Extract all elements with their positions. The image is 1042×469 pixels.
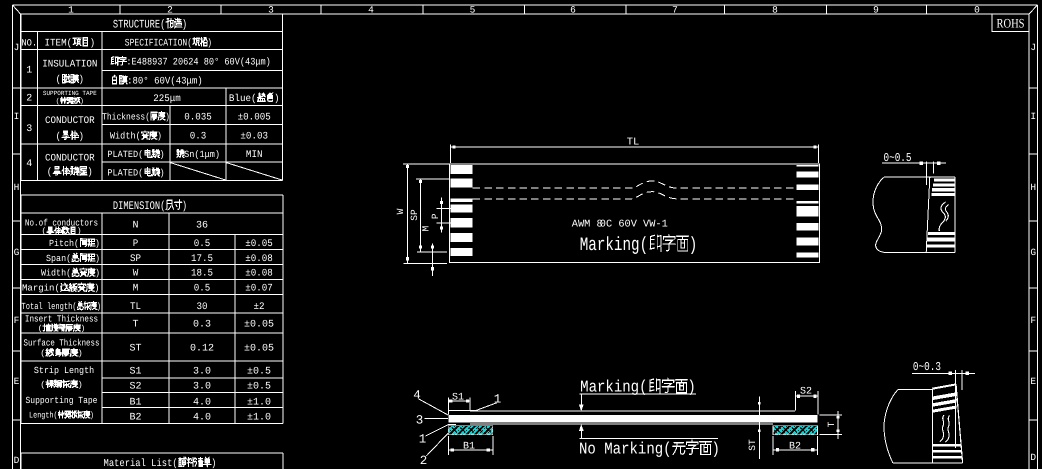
svg-text:0.035: 0.035 (184, 112, 212, 123)
svg-text:): ) (90, 37, 96, 49)
svg-text:J: J (1030, 42, 1036, 53)
svg-text:ITEM(: ITEM( (45, 37, 73, 49)
svg-text:±0.5: ±0.5 (247, 367, 271, 378)
svg-text:G: G (1030, 247, 1036, 258)
svg-text:4: 4 (26, 159, 32, 170)
svg-text:0~0.3: 0~0.3 (913, 360, 941, 374)
svg-text:INSULATION: INSULATION (42, 59, 97, 70)
svg-text:T: T (133, 320, 139, 331)
svg-text:Marking(: Marking( (580, 234, 648, 256)
svg-text:Pitch(: Pitch( (49, 238, 79, 249)
svg-text:B2: B2 (789, 441, 801, 452)
svg-text:): ) (160, 149, 165, 160)
svg-text:1: 1 (494, 393, 502, 407)
svg-text:W: W (395, 208, 406, 214)
svg-text:Surface Thickness: Surface Thickness (24, 338, 100, 349)
svg-text:): ) (79, 74, 85, 86)
svg-text:): ) (207, 37, 212, 49)
svg-text:Length(: Length( (29, 411, 58, 421)
svg-text:DIMENSION(: DIMENSION( (113, 200, 165, 213)
svg-text:M: M (420, 225, 431, 231)
svg-text:PLATED(: PLATED( (107, 149, 143, 160)
svg-text:T: T (826, 421, 837, 427)
svg-text:): ) (97, 301, 101, 312)
svg-text:(: ( (56, 97, 60, 106)
svg-text:Supporting Tape: Supporting Tape (26, 395, 98, 406)
svg-text:17.5: 17.5 (191, 254, 213, 265)
svg-text:1: 1 (419, 432, 427, 446)
svg-text:AWM 8: AWM 8 (572, 219, 603, 231)
svg-text:225μm: 225μm (153, 94, 181, 105)
svg-text:M: M (133, 284, 139, 295)
svg-text:ROHS: ROHS (997, 16, 1025, 31)
svg-text:30: 30 (196, 302, 207, 313)
svg-text:): ) (79, 131, 85, 143)
svg-text:Width(: Width( (110, 131, 141, 142)
svg-text:): ) (94, 283, 99, 294)
svg-text::E488937 20624 80° 60V(43μm): :E488937 20624 80° 60V(43μm) (126, 57, 271, 69)
svg-text:±0.5: ±0.5 (247, 382, 271, 393)
svg-text:S1: S1 (130, 367, 142, 378)
svg-text:CONDUCTOR: CONDUCTOR (45, 153, 95, 164)
svg-text:0.12: 0.12 (190, 344, 214, 355)
svg-text:D: D (14, 455, 20, 466)
svg-text:3: 3 (26, 124, 32, 135)
svg-text:S2: S2 (130, 382, 142, 393)
svg-text:SP: SP (409, 209, 420, 221)
svg-text:4.0: 4.0 (193, 397, 211, 408)
svg-text:±0.005: ±0.005 (238, 112, 271, 123)
svg-text:N: N (133, 221, 139, 232)
svg-text:S1: S1 (452, 392, 464, 403)
svg-text:(: ( (38, 325, 43, 334)
svg-text:Width(: Width( (41, 268, 71, 279)
svg-text:2: 2 (26, 94, 32, 105)
svg-text:I: I (14, 111, 20, 122)
svg-text:I: I (1030, 111, 1036, 122)
svg-text:F: F (1030, 315, 1036, 326)
svg-text:18.5: 18.5 (191, 269, 213, 280)
svg-text:Sn(1μm): Sn(1μm) (184, 149, 220, 160)
svg-text:): ) (165, 111, 170, 122)
svg-text:±1.0: ±1.0 (247, 413, 271, 424)
svg-text:Insert Thickness: Insert Thickness (25, 314, 98, 325)
svg-text:3: 3 (416, 414, 424, 428)
svg-text:TL: TL (130, 302, 141, 313)
svg-text:4.0: 4.0 (193, 413, 211, 424)
svg-text:): ) (95, 253, 100, 264)
svg-text:): ) (160, 167, 165, 178)
svg-text:MIN: MIN (246, 150, 263, 161)
svg-text:B2: B2 (130, 413, 142, 424)
svg-text:(: ( (42, 227, 47, 236)
svg-text:No.of conductors: No.of conductors (25, 217, 98, 228)
svg-text:0.3: 0.3 (190, 132, 207, 143)
svg-text:Margin(: Margin( (22, 283, 60, 294)
svg-text:P: P (133, 239, 139, 250)
svg-text:4: 4 (413, 389, 421, 403)
svg-text:ST: ST (747, 439, 758, 451)
svg-text:): ) (157, 131, 162, 142)
svg-text:): ) (95, 238, 100, 249)
svg-text:±0.08: ±0.08 (245, 254, 273, 265)
svg-text:Span(: Span( (46, 253, 71, 264)
svg-text:0C 60V VW-1: 0C 60V VW-1 (600, 219, 668, 231)
svg-text:2: 2 (420, 454, 428, 468)
svg-text:): ) (211, 458, 216, 469)
svg-text:PLATED(: PLATED( (107, 167, 143, 178)
svg-text:2: 2 (167, 5, 173, 16)
svg-text:No Marking(: No Marking( (579, 440, 672, 459)
svg-text:): ) (80, 97, 84, 106)
svg-text:B1: B1 (130, 397, 142, 408)
svg-text:±0.08: ±0.08 (245, 269, 273, 280)
svg-text:STRUCTURE(: STRUCTURE( (113, 18, 165, 31)
svg-text:3.0: 3.0 (193, 367, 211, 378)
svg-text:W: W (133, 269, 139, 280)
svg-text:Strip Length: Strip Length (34, 365, 94, 376)
svg-text:3.0: 3.0 (193, 382, 211, 393)
svg-text:7: 7 (672, 5, 678, 16)
svg-text:Thickness(: Thickness( (102, 111, 150, 122)
svg-text:(: ( (40, 380, 45, 390)
svg-text:(: ( (40, 349, 45, 359)
svg-text:±0.07: ±0.07 (245, 284, 273, 295)
svg-text:4: 4 (368, 5, 374, 16)
svg-text:): ) (712, 440, 720, 459)
svg-text:1: 1 (68, 5, 74, 16)
svg-text:): ) (689, 234, 698, 256)
svg-text:H: H (14, 182, 20, 193)
svg-text:(: ( (56, 131, 62, 143)
svg-text:): ) (182, 18, 187, 31)
svg-text:6: 6 (570, 5, 576, 16)
svg-text:CONDUCTOR: CONDUCTOR (45, 116, 95, 127)
svg-text:): ) (182, 200, 187, 213)
svg-text:G: G (14, 247, 20, 258)
svg-text:D: D (1030, 452, 1036, 463)
svg-text:): ) (78, 380, 83, 390)
svg-text:): ) (274, 93, 280, 105)
svg-text:): ) (81, 325, 86, 334)
svg-text:NO.: NO. (21, 37, 37, 48)
svg-text:0.5: 0.5 (194, 239, 211, 250)
svg-text:9: 9 (873, 5, 879, 16)
svg-text:E: E (14, 376, 20, 387)
svg-text:): ) (77, 227, 82, 236)
svg-text:±0.03: ±0.03 (240, 132, 268, 143)
svg-text:0.3: 0.3 (193, 320, 211, 331)
svg-text:±0.05: ±0.05 (245, 239, 273, 250)
svg-text:SPECIFICATION(: SPECIFICATION( (125, 37, 192, 49)
svg-text:±1.0: ±1.0 (247, 397, 271, 408)
svg-text:): ) (90, 411, 94, 421)
svg-text:SP: SP (130, 254, 141, 265)
svg-text:(: ( (56, 74, 62, 86)
svg-text:): ) (78, 349, 83, 359)
svg-text:J: J (14, 42, 20, 53)
svg-text:E: E (1030, 376, 1036, 387)
svg-text:±2: ±2 (253, 302, 264, 313)
svg-text:0~0.5: 0~0.5 (883, 151, 911, 165)
svg-text:P: P (430, 213, 441, 219)
svg-text:±0.05: ±0.05 (244, 344, 274, 355)
svg-text:S2: S2 (800, 387, 812, 398)
svg-text:TL: TL (627, 136, 640, 148)
svg-text:Total length(: Total length( (22, 301, 77, 312)
svg-text:Material List(: Material List( (104, 458, 178, 469)
svg-text:Blue(: Blue( (229, 93, 257, 105)
svg-text:1: 1 (26, 66, 32, 77)
svg-text:H: H (1030, 182, 1036, 193)
svg-text:5: 5 (470, 5, 476, 16)
svg-text::80° 60V(43μm): :80° 60V(43μm) (127, 75, 203, 87)
svg-text:±0.05: ±0.05 (244, 320, 274, 331)
svg-text:0: 0 (974, 5, 980, 16)
svg-text:3: 3 (268, 5, 274, 16)
svg-text:ST: ST (130, 344, 142, 355)
svg-text:F: F (14, 315, 20, 326)
svg-text:SUPPORTING TAPE: SUPPORTING TAPE (43, 90, 97, 97)
svg-text:): ) (87, 167, 93, 179)
svg-text:8: 8 (772, 5, 778, 16)
svg-text:0.5: 0.5 (194, 284, 211, 295)
svg-text:): ) (95, 268, 100, 279)
svg-text:(: ( (47, 167, 53, 179)
svg-text:B1: B1 (463, 442, 475, 453)
svg-text:36: 36 (196, 221, 208, 232)
